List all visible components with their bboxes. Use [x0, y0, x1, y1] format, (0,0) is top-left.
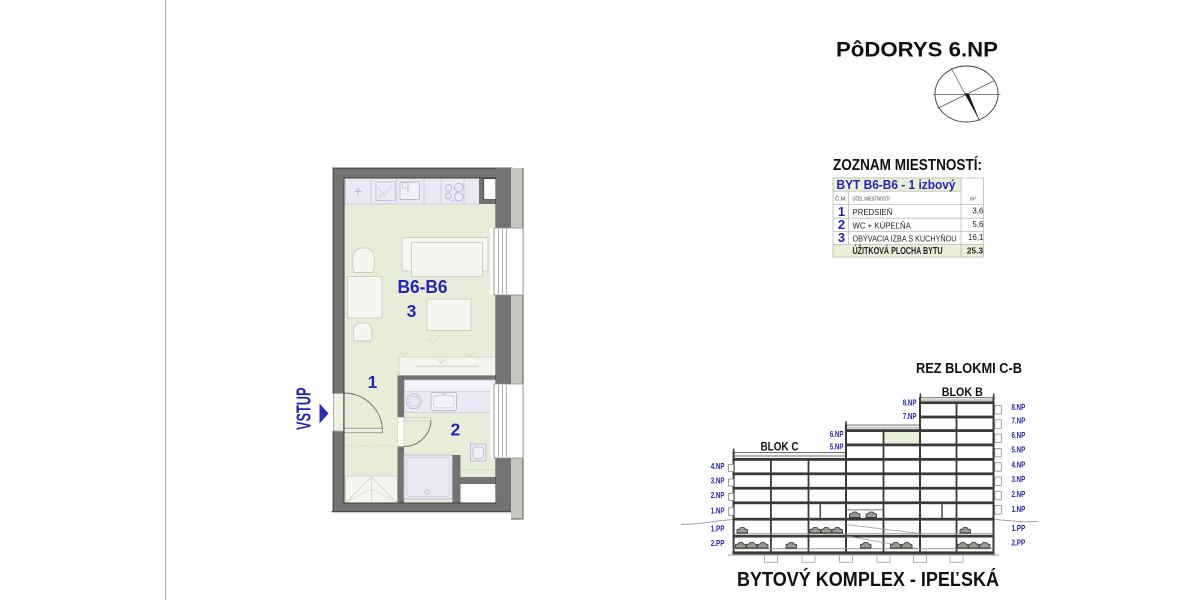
svg-text:6.NP: 6.NP: [1012, 430, 1026, 440]
svg-text:5,6: 5,6: [972, 220, 984, 229]
svg-text:BYT B6-B6 - 1 izbový: BYT B6-B6 - 1 izbový: [837, 178, 956, 192]
svg-text:3: 3: [838, 230, 845, 245]
svg-text:ÚČEL MIESTNOSTI: ÚČEL MIESTNOSTI: [853, 196, 890, 203]
svg-text:3,6: 3,6: [972, 207, 984, 216]
svg-text:6.NP: 6.NP: [830, 429, 844, 439]
svg-text:B6-B6: B6-B6: [398, 276, 448, 297]
svg-text:1.NP: 1.NP: [1012, 504, 1026, 514]
svg-text:2.NP: 2.NP: [711, 490, 725, 500]
svg-text:REZ BLOKMI C-B: REZ BLOKMI C-B: [916, 361, 1022, 377]
svg-text:16,1: 16,1: [968, 233, 984, 242]
svg-text:3.NP: 3.NP: [1012, 474, 1026, 484]
svg-text:1.NP: 1.NP: [711, 506, 725, 516]
svg-text:8.NP: 8.NP: [903, 398, 917, 408]
svg-text:m²: m²: [970, 197, 977, 203]
svg-text:OBÝVACIA IZBA S KUCHYŇOU: OBÝVACIA IZBA S KUCHYŇOU: [853, 234, 957, 243]
svg-text:BYTOVÝ KOMPLEX - IPEĽSKÁ: BYTOVÝ KOMPLEX - IPEĽSKÁ: [737, 567, 999, 591]
svg-text:7.NP: 7.NP: [1012, 416, 1026, 426]
svg-text:VSTUP: VSTUP: [294, 388, 316, 431]
svg-text:BLOK C: BLOK C: [761, 440, 799, 454]
svg-text:2.NP: 2.NP: [1012, 489, 1026, 499]
svg-text:ÚŽITKOVÁ PLOCHA BYTU: ÚŽITKOVÁ PLOCHA BYTU: [853, 245, 943, 257]
svg-text:7.NP: 7.NP: [903, 411, 917, 421]
svg-text:2: 2: [451, 419, 461, 439]
svg-text:5.NP: 5.NP: [1012, 445, 1026, 455]
svg-text:BLOK B: BLOK B: [942, 385, 983, 399]
svg-text:3: 3: [407, 301, 417, 321]
svg-text:1: 1: [368, 372, 378, 392]
svg-text:PôDORYS 6.NP: PôDORYS 6.NP: [836, 39, 998, 62]
svg-text:3.NP: 3.NP: [711, 475, 725, 485]
svg-text:WC + KÚPEĽŇA: WC + KÚPEĽŇA: [853, 221, 912, 230]
svg-text:4.NP: 4.NP: [1012, 460, 1026, 470]
svg-text:ZOZNAM MIESTNOSTÍ:: ZOZNAM MIESTNOSTÍ:: [833, 157, 982, 174]
svg-text:Č.M.: Č.M.: [835, 196, 847, 203]
svg-text:25.3: 25.3: [967, 246, 984, 256]
svg-text:1.PP: 1.PP: [711, 524, 725, 534]
svg-text:2.PP: 2.PP: [1012, 538, 1026, 548]
svg-text:4.NP: 4.NP: [711, 461, 725, 471]
svg-text:2.PP: 2.PP: [711, 538, 725, 548]
svg-text:8.NP: 8.NP: [1012, 402, 1026, 412]
svg-text:PREDSIEŇ: PREDSIEŇ: [853, 208, 893, 217]
svg-text:1.PP: 1.PP: [1012, 523, 1026, 533]
svg-text:5.NP: 5.NP: [830, 442, 844, 452]
